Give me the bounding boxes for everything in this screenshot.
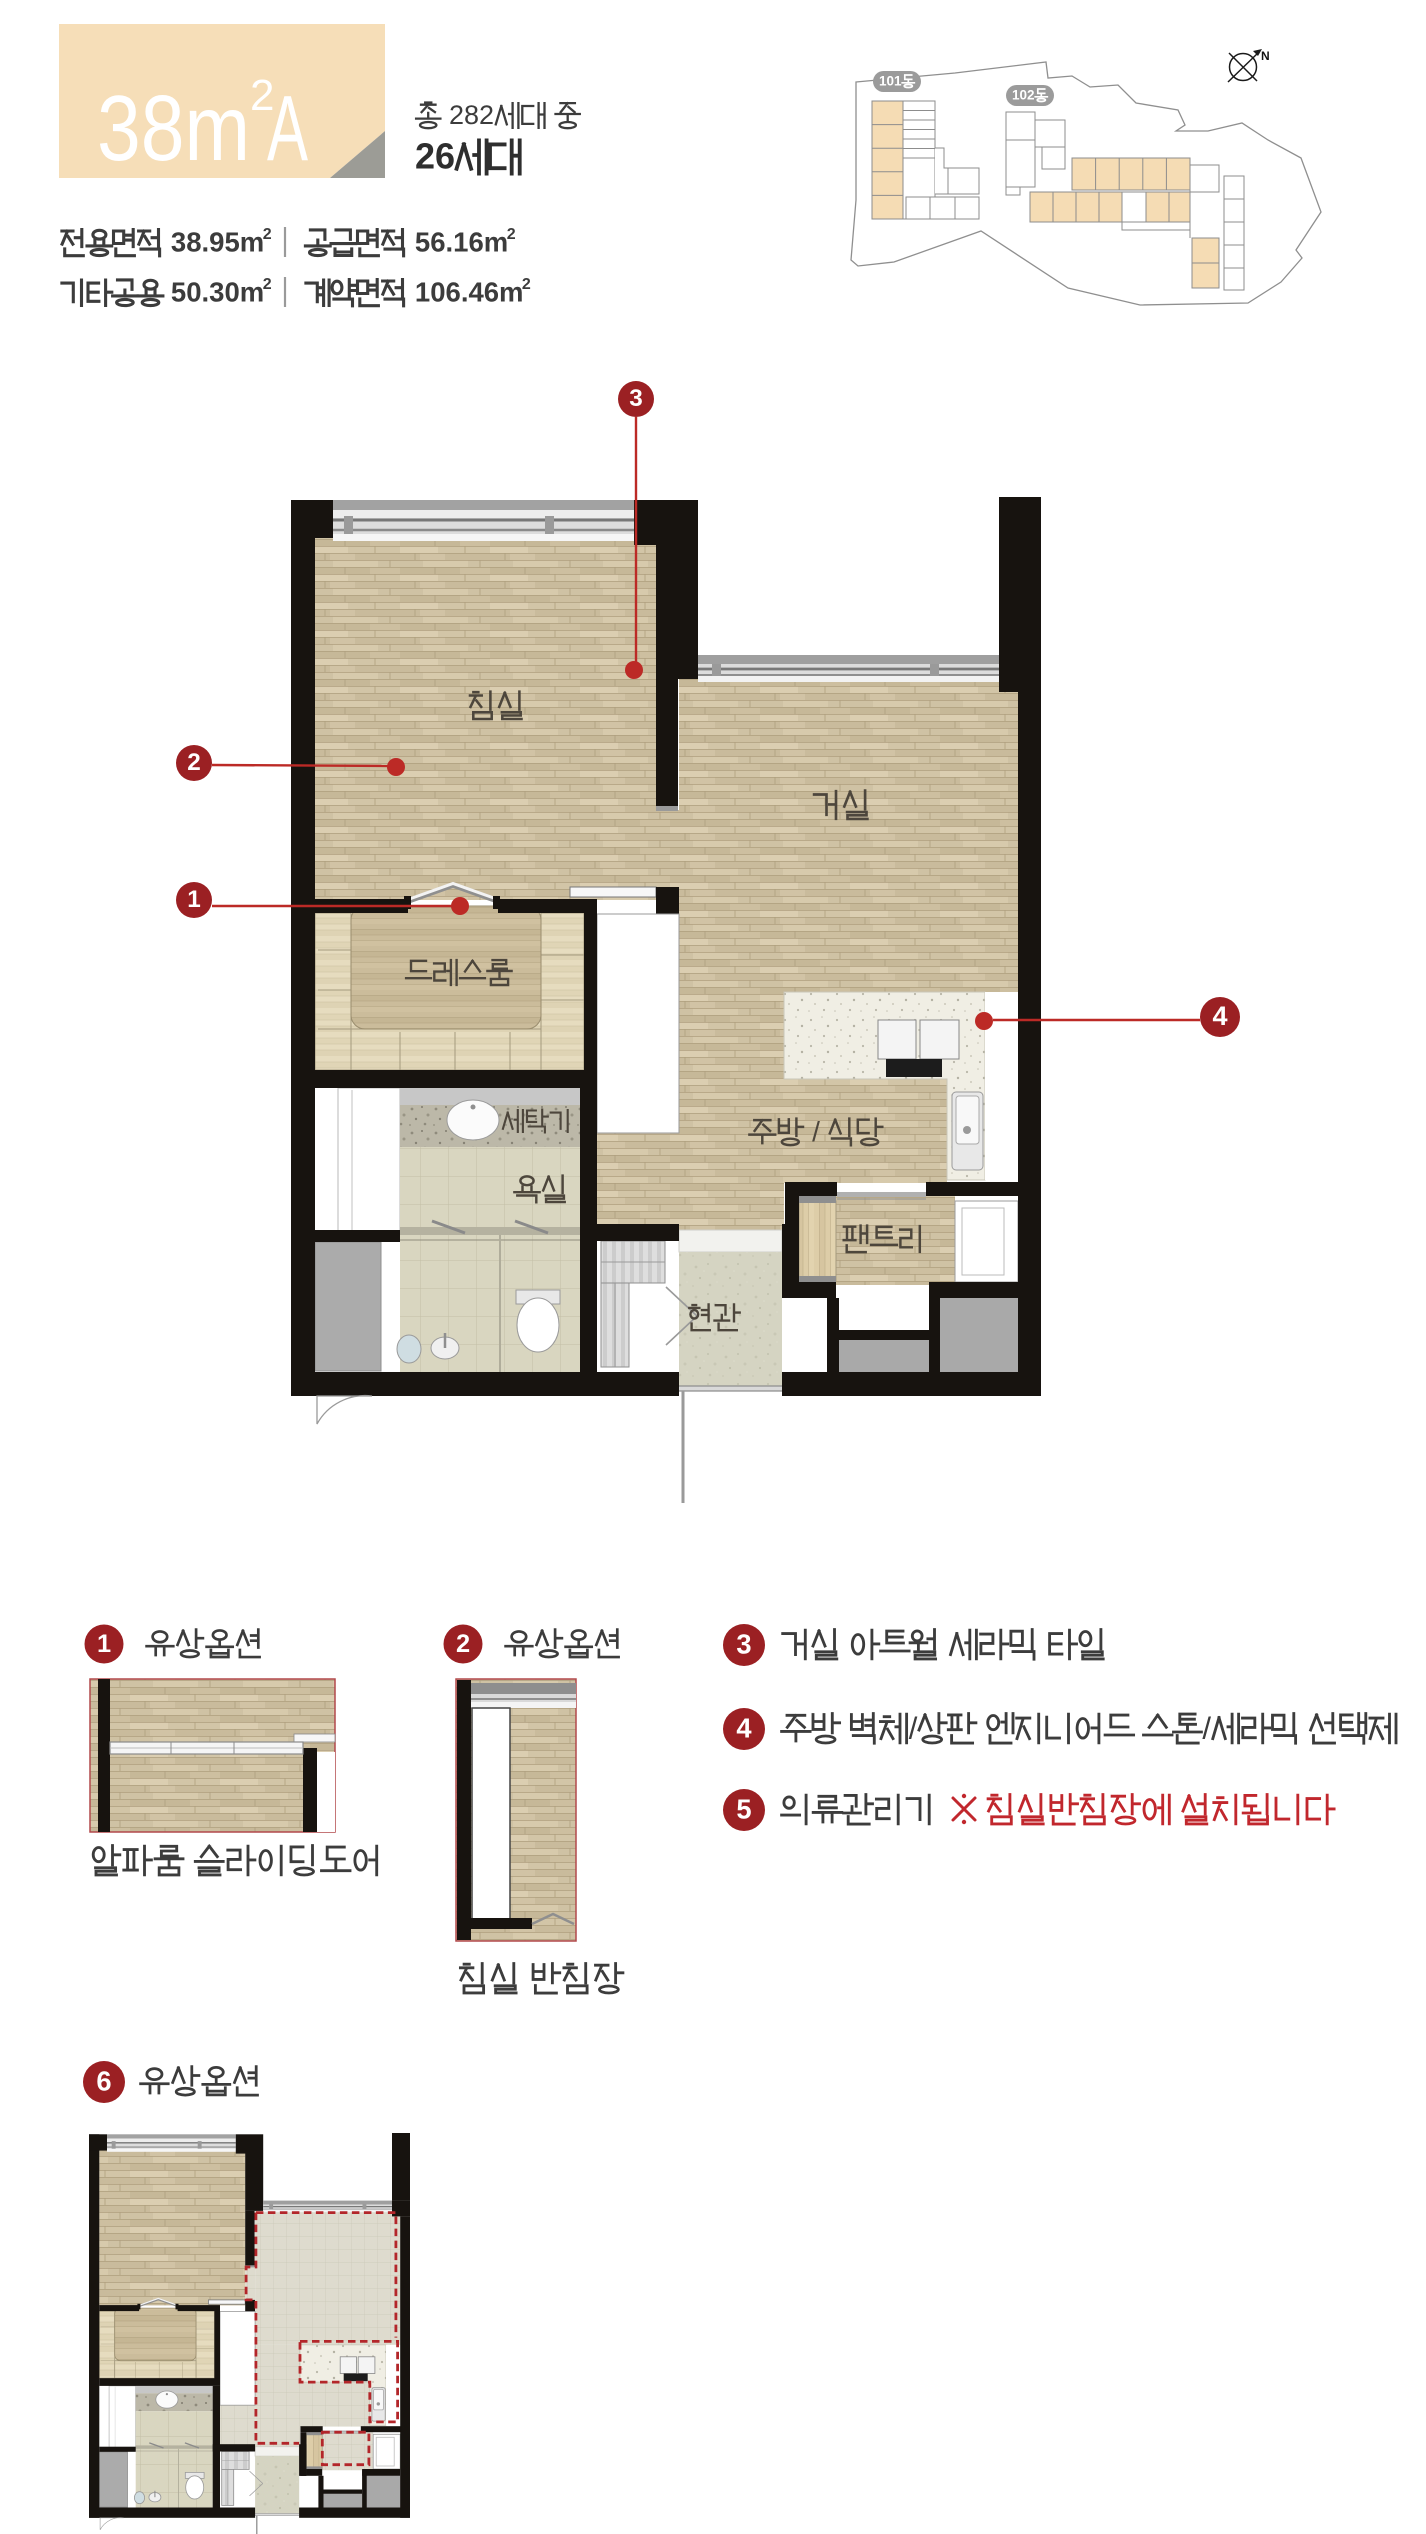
svg-text:1: 1 (97, 1630, 111, 1658)
svg-text:26: 26 (415, 136, 455, 177)
svg-text:/: / (909, 1710, 918, 1745)
svg-text:2: 2 (522, 276, 531, 293)
svg-text:4: 4 (736, 1712, 752, 1743)
svg-text:6: 6 (96, 2065, 111, 2096)
svg-text:3: 3 (736, 1628, 751, 1659)
svg-text:102: 102 (1012, 88, 1035, 103)
svg-text:282: 282 (442, 100, 495, 130)
svg-text:2: 2 (507, 226, 516, 243)
svg-text:/: / (1202, 1710, 1211, 1745)
svg-text:38.95m: 38.95m (163, 227, 264, 258)
svg-text:106.46m: 106.46m (407, 277, 523, 308)
svg-text:101: 101 (879, 74, 902, 89)
svg-text:A: A (267, 76, 308, 180)
svg-text:1: 1 (187, 886, 201, 913)
svg-text:50.30m: 50.30m (163, 277, 264, 308)
svg-text:38m: 38m (97, 76, 250, 180)
svg-text:56.16m: 56.16m (407, 227, 508, 258)
svg-text:/: / (804, 1116, 827, 1147)
svg-text:2: 2 (456, 1630, 470, 1658)
svg-text:2: 2 (263, 226, 272, 243)
svg-text:4: 4 (1212, 1001, 1227, 1031)
svg-text:5: 5 (736, 1793, 751, 1824)
svg-text:2: 2 (187, 749, 201, 776)
svg-text:N: N (1261, 49, 1270, 63)
svg-text:3: 3 (629, 385, 643, 412)
svg-text:2: 2 (263, 276, 272, 293)
